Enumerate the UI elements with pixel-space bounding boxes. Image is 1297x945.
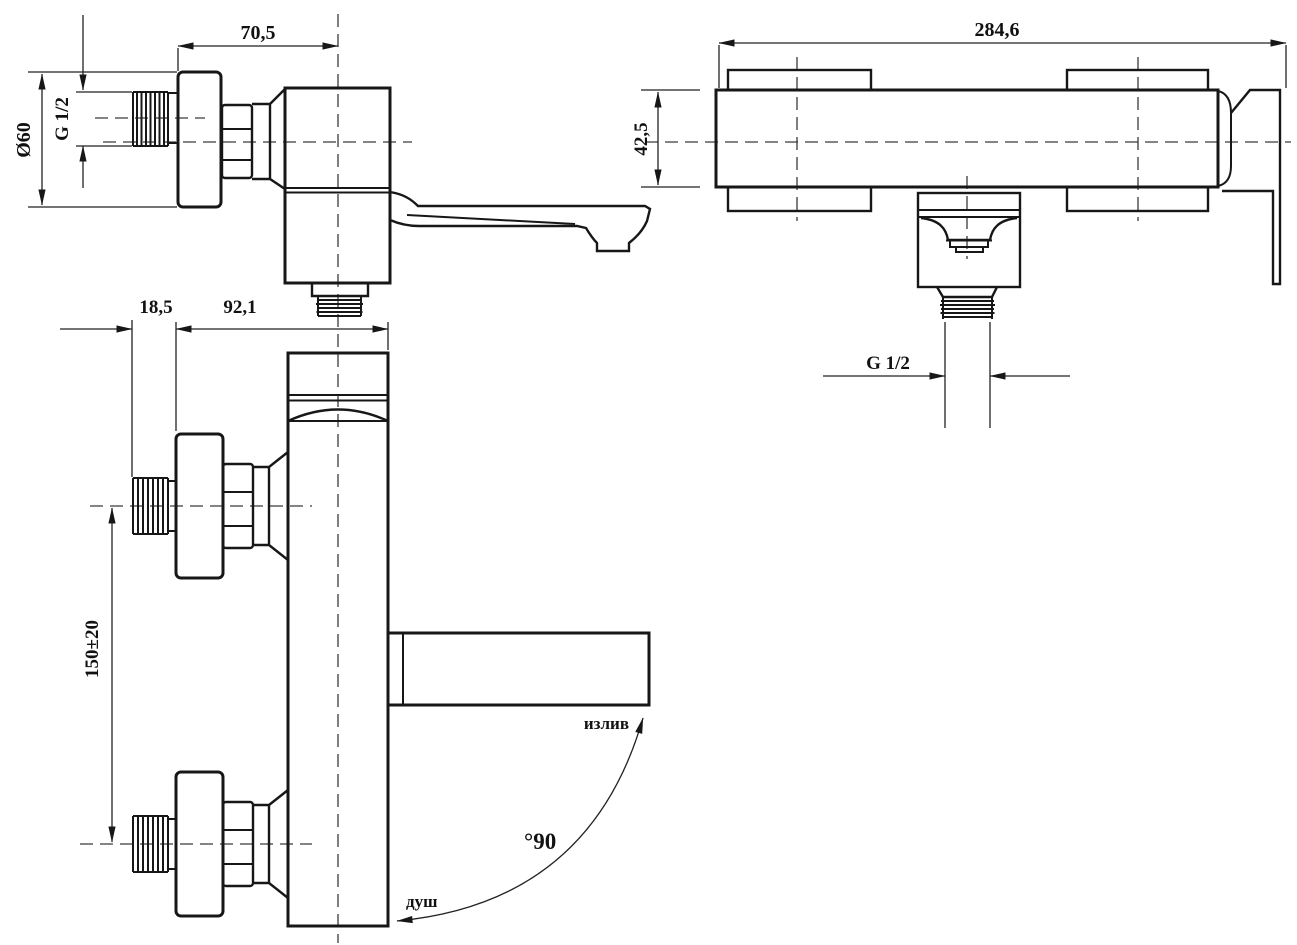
dim-width-70-5: 70,5 bbox=[178, 22, 338, 71]
dim-width-value: 70,5 bbox=[241, 22, 276, 44]
bottom-outlet-side bbox=[312, 283, 368, 316]
mount-block-top-left bbox=[728, 70, 871, 90]
lever-side bbox=[388, 633, 649, 705]
dim-thread-g12-front: G 1/2 bbox=[823, 322, 1070, 428]
label-spout-position: излив bbox=[584, 714, 629, 733]
dim-pipe-spacing-value: 150±20 bbox=[82, 620, 103, 678]
body-seam bbox=[285, 188, 390, 193]
dim-length-284-6: 284,6 bbox=[719, 19, 1286, 88]
dim-pipe-spacing-150: 150±20 bbox=[82, 508, 112, 842]
label-rotation-angle: °90 bbox=[524, 829, 556, 854]
dim-height-value: 42,5 bbox=[631, 122, 652, 155]
spout-crease bbox=[407, 215, 575, 224]
dim-diameter-value: Ø60 bbox=[13, 122, 35, 158]
dim-length-value: 284,6 bbox=[975, 19, 1020, 41]
centerlines bbox=[80, 14, 1291, 943]
technical-drawing-sheet: 70,5 Ø60 G 1/2 bbox=[0, 0, 1297, 945]
wall-pipe-thread bbox=[133, 92, 178, 146]
escutcheon-flange bbox=[178, 72, 221, 207]
dim-depth-value: 92,1 bbox=[223, 297, 256, 318]
shower-outlet-thread bbox=[937, 287, 997, 319]
dim-wall-offset-18-5: 18,5 bbox=[60, 297, 173, 477]
body-end-cap bbox=[1218, 91, 1231, 186]
dim-wall-offset-value: 18,5 bbox=[139, 297, 172, 318]
dim-thread-value: G 1/2 bbox=[52, 97, 73, 141]
label-shower-position: душ bbox=[406, 892, 437, 911]
diverter-housing bbox=[918, 193, 1020, 287]
lever-rotation-arc: излив душ °90 bbox=[397, 714, 643, 921]
view-side-spout: 70,5 Ø60 G 1/2 bbox=[13, 15, 650, 316]
body-bar-front bbox=[716, 90, 1218, 187]
cone-adapter bbox=[252, 89, 285, 189]
dim-height-42-5: 42,5 bbox=[631, 90, 700, 187]
dim-thread-g12-side: G 1/2 bbox=[52, 15, 132, 188]
diverter-bell-curve bbox=[921, 218, 1017, 240]
spout bbox=[390, 192, 650, 251]
dim-thread-front-value: G 1/2 bbox=[866, 353, 910, 374]
view-front: 284,6 42,5 G 1/2 bbox=[631, 19, 1286, 428]
mount-block-bottom-left bbox=[728, 187, 871, 211]
view-side-lever: 18,5 92,1 150±20 излив душ °90 bbox=[60, 297, 649, 926]
